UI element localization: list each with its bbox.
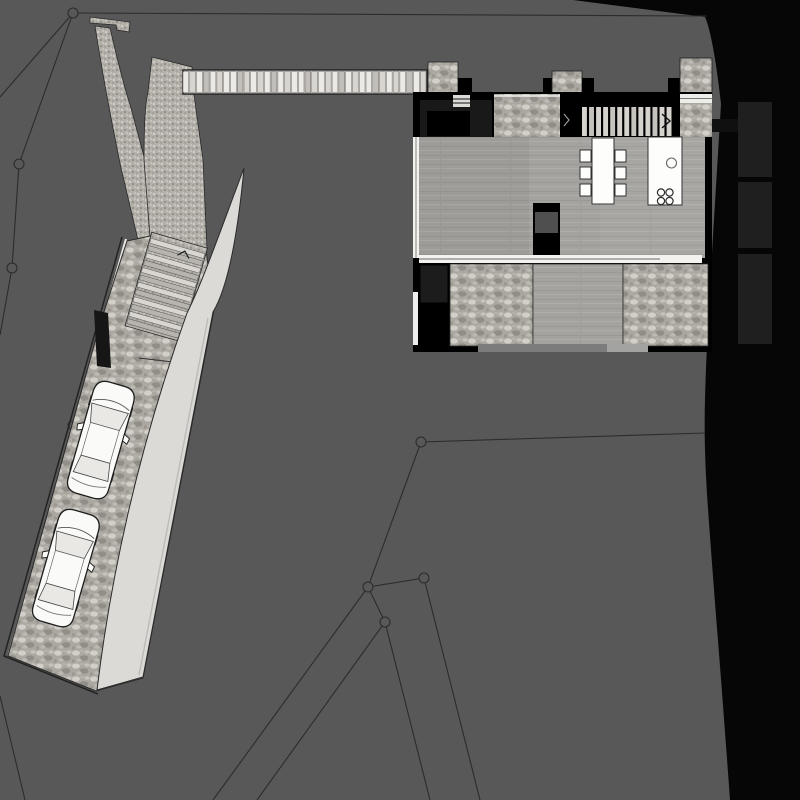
- interior-stair-tread: [624, 107, 629, 136]
- bridge-walkway: [183, 70, 427, 94]
- entry-striped-mat: [453, 95, 470, 107]
- bridge-plank: [237, 72, 243, 93]
- bridge-plank: [305, 72, 311, 93]
- survey-point: [7, 263, 17, 273]
- bridge-plank: [271, 72, 277, 93]
- east-pier-stone: [680, 103, 712, 137]
- east-hillside-room: [738, 102, 772, 177]
- terrace-panel-east: [623, 264, 708, 346]
- dining-chair: [615, 184, 626, 196]
- bridge-plank: [210, 72, 216, 93]
- survey-point: [363, 582, 373, 592]
- bridge-plank: [251, 72, 257, 93]
- interior-stair-tread: [631, 107, 636, 136]
- kitchen-island: [648, 137, 682, 205]
- bridge-plank: [278, 72, 284, 93]
- bridge-plank: [244, 72, 250, 93]
- bridge-plank: [413, 72, 419, 93]
- east-hillside-rooms: [738, 102, 772, 344]
- terrace-panel-west: [450, 264, 533, 346]
- bridge-plank: [380, 72, 386, 93]
- bridge-plank: [346, 72, 352, 93]
- entry-stub-1: [458, 78, 472, 94]
- bridge-plank: [366, 72, 372, 93]
- bridge-plank: [339, 72, 345, 93]
- interior-stair-tread: [596, 107, 601, 136]
- dining-chair: [615, 167, 626, 179]
- interior-stair-tread: [660, 107, 665, 136]
- dining-chair: [580, 150, 591, 162]
- bridge-plank: [352, 72, 358, 93]
- bridge-plank: [291, 72, 297, 93]
- east-connector: [712, 119, 739, 132]
- entry-stub-3: [582, 78, 594, 94]
- south-door-band-light: [607, 344, 648, 352]
- bridge-plank: [319, 72, 325, 93]
- bridge-plank: [217, 72, 223, 93]
- interior-stair-tread: [617, 107, 622, 136]
- survey-point: [68, 8, 78, 18]
- entry-pier-mid: [552, 71, 582, 94]
- terrace-panel-mid: [533, 264, 623, 346]
- entry-pier-east: [680, 58, 712, 95]
- bridge-plank: [407, 72, 413, 93]
- interior-stair-tread: [610, 107, 615, 136]
- bridge-plank: [386, 72, 392, 93]
- survey-point: [419, 573, 429, 583]
- bridge-plank: [359, 72, 365, 93]
- east-hillside-room: [738, 254, 772, 344]
- dining-table: [592, 138, 614, 204]
- bridge-plank: [373, 72, 379, 93]
- interior-stair-tread: [645, 107, 650, 136]
- interior-stair-tread: [589, 107, 594, 136]
- entry-stub-2: [543, 78, 552, 94]
- bridge-plank: [285, 72, 291, 93]
- west-wall-sliver: [413, 292, 418, 345]
- bridge-plank: [325, 72, 331, 93]
- service-core-band: [535, 212, 558, 233]
- entry-pier-west: [428, 62, 458, 94]
- floor-shade: [419, 137, 529, 258]
- bridge-plank: [197, 72, 203, 93]
- interior-stair-tread: [653, 107, 658, 136]
- bridge-plank: [420, 72, 426, 93]
- bridge-plank: [298, 72, 304, 93]
- entry-room-furniture: [427, 111, 470, 136]
- bridge-plank: [400, 72, 406, 93]
- dining-chair: [580, 167, 591, 179]
- survey-point: [416, 437, 426, 447]
- bridge-plank: [264, 72, 270, 93]
- interior-stair-tread: [603, 107, 608, 136]
- bridge-plank: [183, 72, 189, 93]
- bridge-plank: [230, 72, 236, 93]
- dining-chair: [580, 184, 591, 196]
- bridge-plank: [203, 72, 209, 93]
- site-plan: [0, 0, 800, 800]
- bridge-plank: [312, 72, 318, 93]
- terrace-room-dark: [420, 265, 448, 303]
- bridge-plank: [190, 72, 196, 93]
- survey-point: [14, 159, 24, 169]
- interior-stair-tread: [582, 107, 587, 136]
- entry-stone-landing: [494, 94, 560, 137]
- entry-stub-4: [668, 78, 680, 94]
- interior-stair-tread: [638, 107, 643, 136]
- bridge-plank: [224, 72, 230, 93]
- bridge-plank: [258, 72, 264, 93]
- bridge-plank: [393, 72, 399, 93]
- bridge-plank: [332, 72, 338, 93]
- dining-chair: [615, 150, 626, 162]
- survey-point: [380, 617, 390, 627]
- east-hillside-room: [738, 182, 772, 248]
